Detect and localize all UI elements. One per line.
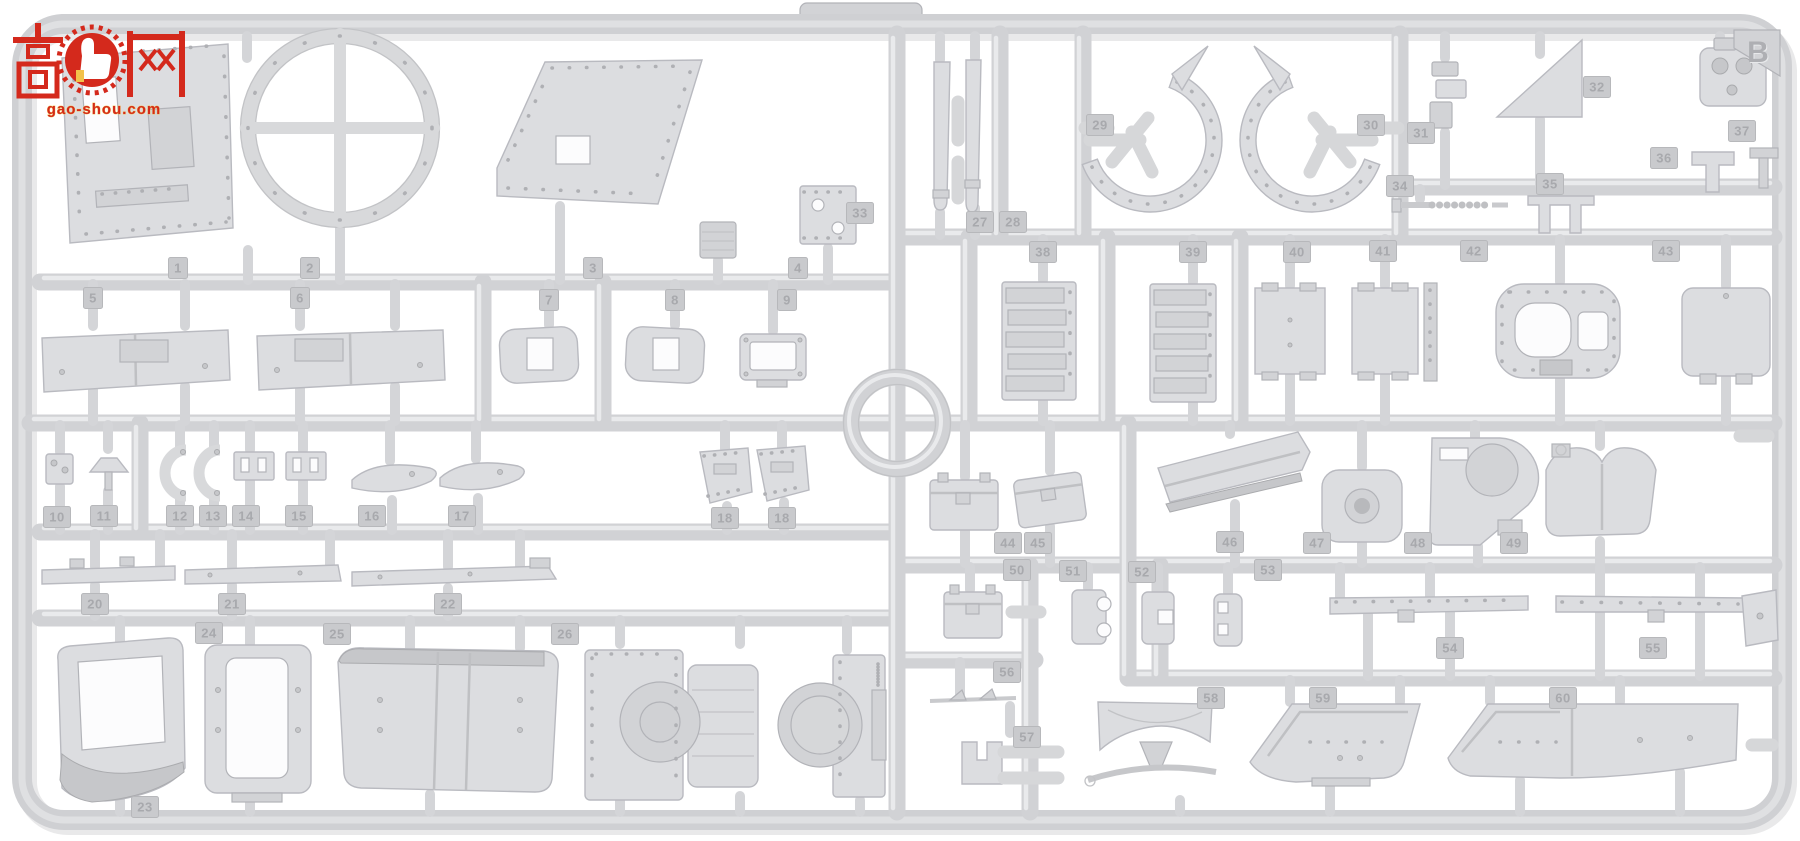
part-toolbox-44 bbox=[930, 473, 998, 530]
part-number-tag: 4 bbox=[789, 258, 808, 279]
part-number-tag: 23 bbox=[132, 797, 159, 818]
part-blade-16 bbox=[352, 465, 436, 492]
part-number-tag: 55 bbox=[1640, 638, 1667, 659]
part-number-tag: 20 bbox=[82, 594, 109, 615]
part-number-tag: 54 bbox=[1437, 638, 1464, 659]
svg-text:46: 46 bbox=[1222, 535, 1237, 550]
part-number-tag: 22 bbox=[435, 594, 462, 615]
sprue-photo: 1234567891011121314151617181820212224252… bbox=[0, 0, 1800, 836]
svg-text:37: 37 bbox=[1734, 124, 1749, 139]
svg-text:15: 15 bbox=[291, 509, 306, 524]
part-gun-barrel-28 bbox=[965, 60, 981, 212]
part-number-tag: 48 bbox=[1405, 533, 1432, 554]
svg-text:23: 23 bbox=[137, 800, 152, 815]
svg-text:32: 32 bbox=[1589, 80, 1604, 95]
svg-text:21: 21 bbox=[224, 597, 239, 612]
svg-text:49: 49 bbox=[1506, 536, 1521, 551]
part-toolbox-50 bbox=[944, 585, 1002, 638]
part-number-tag: 60 bbox=[1550, 688, 1577, 709]
watermark-url: gao-shou.com bbox=[47, 101, 162, 118]
part-gun-cradle-plate bbox=[778, 655, 886, 797]
part-number-tag: 58 bbox=[1198, 688, 1225, 709]
svg-text:13: 13 bbox=[205, 509, 220, 524]
part-number-tag: 38 bbox=[1030, 242, 1057, 263]
part-number-tag: 12 bbox=[167, 506, 194, 527]
part-number-tag: 10 bbox=[44, 507, 71, 528]
part-louver-grille-39 bbox=[1150, 284, 1216, 402]
part-number-tag: 30 bbox=[1358, 115, 1385, 136]
part-bench-bracket-35 bbox=[1528, 196, 1594, 233]
part-number-tag: 53 bbox=[1255, 560, 1282, 581]
part-mantlet-frame-42 bbox=[1496, 284, 1620, 378]
svg-text:59: 59 bbox=[1315, 691, 1330, 706]
svg-text:29: 29 bbox=[1092, 118, 1107, 133]
part-curved-roof-25 bbox=[338, 648, 558, 792]
watermark-char-gao bbox=[16, 26, 60, 96]
part-number-tag: 51 bbox=[1060, 561, 1087, 582]
part-number-tag: 18 bbox=[712, 508, 739, 529]
svg-text:34: 34 bbox=[1392, 179, 1408, 194]
svg-text:17: 17 bbox=[454, 509, 469, 524]
part-box-53 bbox=[1214, 594, 1242, 646]
part-number-tag: 28 bbox=[1000, 212, 1027, 233]
part-hull-panel-59 bbox=[1250, 704, 1420, 786]
part-rounded-mount-7 bbox=[499, 326, 580, 384]
svg-text:26: 26 bbox=[557, 627, 572, 642]
part-scalloped-mount-49 bbox=[1546, 444, 1656, 536]
part-number-tag: 43 bbox=[1653, 241, 1680, 262]
svg-text:57: 57 bbox=[1019, 730, 1034, 745]
part-slotted-plate-14 bbox=[234, 452, 274, 480]
part-number-tag: 1 bbox=[169, 258, 188, 279]
part-number-tag: 33 bbox=[847, 203, 874, 224]
part-number-tag: 5 bbox=[84, 288, 103, 309]
svg-text:56: 56 bbox=[999, 665, 1014, 680]
part-number-tag: 29 bbox=[1087, 115, 1114, 136]
part-number-tag: 47 bbox=[1304, 533, 1331, 554]
part-number-tag: 9 bbox=[778, 290, 797, 311]
svg-text:8: 8 bbox=[671, 293, 679, 308]
part-turret-box-26 bbox=[585, 650, 758, 800]
svg-text:35: 35 bbox=[1542, 177, 1557, 192]
svg-text:55: 55 bbox=[1645, 641, 1660, 656]
part-number-tag: 41 bbox=[1370, 241, 1397, 262]
part-number-tag: 45 bbox=[1025, 533, 1052, 554]
part-saddle-clamp-12 bbox=[165, 450, 186, 497]
svg-text:52: 52 bbox=[1134, 565, 1149, 580]
svg-text:58: 58 bbox=[1203, 691, 1218, 706]
part-ribbed-block bbox=[700, 222, 736, 258]
svg-text:25: 25 bbox=[329, 627, 344, 642]
svg-text:5: 5 bbox=[89, 291, 97, 306]
part-rod-chain-34 bbox=[1392, 199, 1508, 212]
svg-text:9: 9 bbox=[783, 293, 791, 308]
part-box-51 bbox=[1072, 590, 1111, 644]
svg-text:12: 12 bbox=[172, 509, 187, 524]
svg-text:41: 41 bbox=[1375, 244, 1390, 259]
svg-text:60: 60 bbox=[1555, 691, 1570, 706]
part-disc-bracket-48 bbox=[1430, 438, 1539, 545]
part-saddle-clamp-13 bbox=[199, 450, 220, 497]
svg-text:51: 51 bbox=[1065, 564, 1080, 579]
part-hatch-ring bbox=[241, 29, 440, 228]
part-flat-panel-40 bbox=[1255, 283, 1325, 380]
part-flange-box bbox=[740, 334, 806, 387]
part-fender-panel-5 bbox=[42, 330, 230, 392]
svg-text:4: 4 bbox=[794, 261, 802, 276]
svg-text:18: 18 bbox=[774, 511, 789, 526]
svg-text:18: 18 bbox=[717, 511, 732, 526]
svg-text:39: 39 bbox=[1185, 245, 1200, 260]
svg-text:2: 2 bbox=[306, 261, 314, 276]
part-number-tag: 50 bbox=[1004, 560, 1031, 581]
part-small-bracket-10 bbox=[46, 454, 73, 484]
part-number-tag: 18 bbox=[769, 508, 796, 529]
part-fender-panel-6 bbox=[257, 330, 445, 390]
svg-text:1: 1 bbox=[174, 261, 182, 276]
svg-text:10: 10 bbox=[49, 510, 64, 525]
part-louver-grille-38 bbox=[1002, 282, 1076, 400]
svg-text:54: 54 bbox=[1442, 641, 1458, 656]
part-number-tag: 16 bbox=[359, 506, 386, 527]
part-gun-barrel-27 bbox=[933, 62, 950, 210]
part-strip-22 bbox=[352, 558, 556, 586]
svg-text:30: 30 bbox=[1363, 118, 1378, 133]
part-number-tag: 57 bbox=[1014, 727, 1041, 748]
watermark-thumb-logo bbox=[59, 27, 125, 93]
sprue-artwork: 1234567891011121314151617181820212224252… bbox=[0, 0, 1800, 836]
svg-text:40: 40 bbox=[1289, 245, 1304, 260]
part-finned-rod-56 bbox=[930, 689, 1016, 701]
watermark: gao-shou.com bbox=[4, 8, 204, 125]
part-number-tag: 8 bbox=[666, 290, 685, 311]
svg-text:53: 53 bbox=[1260, 563, 1275, 578]
svg-text:50: 50 bbox=[1009, 563, 1024, 578]
part-open-frame-24 bbox=[205, 645, 311, 802]
svg-text:16: 16 bbox=[364, 509, 379, 524]
part-clevis-57 bbox=[962, 742, 1058, 784]
part-edge-plate bbox=[1742, 590, 1778, 646]
part-number-tag: 2 bbox=[301, 258, 320, 279]
part-number-tag: 34 bbox=[1387, 176, 1414, 197]
svg-text:45: 45 bbox=[1030, 536, 1045, 551]
svg-text:38: 38 bbox=[1035, 245, 1050, 260]
svg-text:47: 47 bbox=[1309, 536, 1324, 551]
part-number-tag: 26 bbox=[552, 624, 579, 645]
part-number-tag: 36 bbox=[1651, 148, 1678, 169]
svg-text:28: 28 bbox=[1005, 215, 1020, 230]
part-number-tag: 27 bbox=[967, 212, 994, 233]
part-bearing-box-47 bbox=[1322, 470, 1402, 542]
svg-text:42: 42 bbox=[1466, 244, 1481, 259]
part-number-tag: 7 bbox=[540, 290, 559, 311]
svg-text:44: 44 bbox=[1000, 536, 1016, 551]
part-number-tag: 17 bbox=[449, 506, 476, 527]
part-number-tag: 59 bbox=[1310, 688, 1337, 709]
part-number-tag: 24 bbox=[196, 623, 223, 644]
watermark-char-wang bbox=[130, 34, 182, 94]
part-number-tag: 13 bbox=[200, 506, 227, 527]
part-box-52 bbox=[1142, 592, 1174, 644]
part-flat-panel-41 bbox=[1352, 283, 1437, 381]
svg-text:11: 11 bbox=[97, 509, 112, 524]
part-riveted-wedge-18a bbox=[700, 448, 752, 503]
part-riveted-wedge-18b bbox=[757, 446, 809, 501]
part-funnel-11 bbox=[90, 458, 128, 490]
svg-text:22: 22 bbox=[440, 597, 455, 612]
part-sloped-plate bbox=[497, 60, 702, 204]
part-number-tag: 21 bbox=[219, 594, 246, 615]
part-number-tag: 52 bbox=[1129, 562, 1156, 583]
svg-text:31: 31 bbox=[1413, 126, 1428, 141]
part-superstructure-side-23 bbox=[58, 638, 185, 802]
part-number-tag: 42 bbox=[1461, 241, 1488, 262]
part-strip-21 bbox=[185, 565, 341, 584]
part-number-tag: 6 bbox=[291, 288, 310, 309]
part-number-tag: 11 bbox=[91, 506, 118, 527]
part-number-tag: 49 bbox=[1501, 533, 1528, 554]
svg-text:33: 33 bbox=[852, 206, 867, 221]
part-slotted-plate-15 bbox=[286, 452, 326, 480]
part-riveted-strip-55 bbox=[1556, 596, 1745, 622]
svg-text:14: 14 bbox=[238, 509, 254, 524]
svg-text:24: 24 bbox=[201, 626, 217, 641]
part-rounded-mount-8 bbox=[625, 326, 706, 384]
part-number-tag: 35 bbox=[1537, 174, 1564, 195]
svg-text:27: 27 bbox=[972, 215, 987, 230]
part-toolbox-45 bbox=[1013, 472, 1087, 529]
sprue-letter: B bbox=[1747, 36, 1769, 69]
part-number-tag: 44 bbox=[995, 533, 1022, 554]
part-number-tag: 15 bbox=[286, 506, 313, 527]
svg-text:20: 20 bbox=[87, 597, 102, 612]
part-number-tag: 37 bbox=[1729, 121, 1756, 142]
svg-text:6: 6 bbox=[296, 291, 304, 306]
part-saddle-assembly-58 bbox=[1085, 702, 1216, 786]
part-number-tag: 14 bbox=[233, 506, 260, 527]
part-rounded-plate-43 bbox=[1682, 288, 1770, 384]
part-clip-stack-31 bbox=[1430, 62, 1466, 128]
part-number-tag: 31 bbox=[1408, 123, 1435, 144]
svg-text:36: 36 bbox=[1656, 151, 1671, 166]
part-number-tag: 3 bbox=[584, 258, 603, 279]
part-blade-17 bbox=[440, 463, 524, 490]
part-number-tag: 25 bbox=[324, 624, 351, 645]
svg-text:43: 43 bbox=[1658, 244, 1673, 259]
svg-text:48: 48 bbox=[1410, 536, 1425, 551]
part-number-tag: 56 bbox=[994, 662, 1021, 683]
part-number-tag: 40 bbox=[1284, 242, 1311, 263]
svg-text:7: 7 bbox=[545, 293, 553, 308]
part-riveted-strip-54 bbox=[1330, 596, 1528, 622]
part-number-tag: 39 bbox=[1180, 242, 1207, 263]
part-number-tag: 46 bbox=[1217, 532, 1244, 553]
part-number-tag: 32 bbox=[1584, 77, 1611, 98]
svg-text:3: 3 bbox=[589, 261, 597, 276]
part-hull-panel-60 bbox=[1448, 704, 1738, 778]
